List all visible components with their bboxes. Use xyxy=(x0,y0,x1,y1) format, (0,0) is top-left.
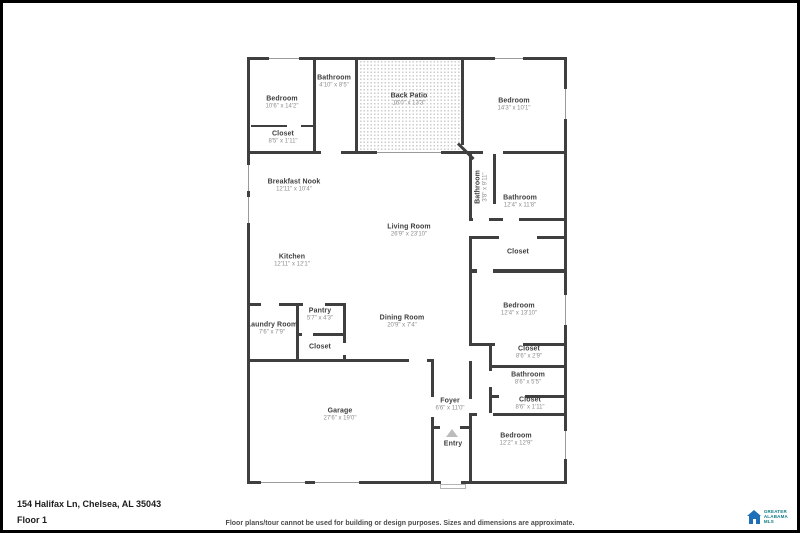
wall-segment xyxy=(299,57,495,60)
address-text: 154 Halifax Ln, Chelsea, AL 35043 xyxy=(17,499,161,509)
room-label-garage: Garage 27'6" x 19'0" xyxy=(324,407,357,424)
wall-segment xyxy=(469,361,472,399)
window-marker xyxy=(495,57,523,60)
wall-segment xyxy=(503,151,564,154)
mls-logo-text: GREATER ALABAMA MLS xyxy=(764,509,788,525)
room-name: Breakfast Nook xyxy=(268,178,321,187)
mls-logo-line: MLS xyxy=(764,519,788,524)
room-name: Living Room xyxy=(387,223,431,232)
room-dims: 6'6" x 11'0" xyxy=(435,406,464,414)
garage-door-marker xyxy=(261,481,305,484)
wall-segment xyxy=(469,154,472,221)
room-name: Back Patio xyxy=(391,92,428,101)
room-label-breakfast-nook: Breakfast Nook 12'11" x 10'4" xyxy=(268,178,321,195)
room-label-bedroom-right: Bedroom 12'4" x 13'10" xyxy=(501,302,537,319)
room-name: Bathroom xyxy=(511,371,545,380)
room-name: Bedroom xyxy=(500,432,533,441)
wall-segment xyxy=(341,151,358,154)
room-name: Foyer xyxy=(435,397,464,406)
window-marker xyxy=(564,431,567,459)
room-label-closet-bottom-1: Closet 8'6" x 2'9" xyxy=(516,345,542,362)
wall-segment xyxy=(247,303,261,306)
wall-segment xyxy=(469,413,477,416)
room-dims: 20'9" x 7'4" xyxy=(380,323,425,331)
room-dims: 7'6" x 7'9" xyxy=(247,330,298,338)
wall-segment xyxy=(247,57,269,60)
room-name: Bathroom xyxy=(474,170,483,204)
wall-segment xyxy=(247,57,250,165)
room-label-closet-top-left: Closet 8'5" x 1'11" xyxy=(268,130,297,147)
room-dims: 12'4" x 11'8" xyxy=(503,203,537,211)
mls-logo: GREATER ALABAMA MLS xyxy=(747,509,788,525)
floor-plan: Bedroom 10'6" x 14'2" Closet 8'5" x 1'11… xyxy=(3,3,797,530)
wall-segment xyxy=(489,395,499,398)
wall-segment xyxy=(460,426,469,429)
room-label-closet-bottom-2: Closet 8'6" x 1'11" xyxy=(515,396,544,413)
room-label-bathroom-small: Bathroom 3'8" x 9'11" xyxy=(474,170,491,204)
room-name: Bedroom xyxy=(501,302,537,311)
wall-segment xyxy=(355,57,358,154)
wall-segment xyxy=(247,359,409,362)
room-dims: 3'8" x 9'11" xyxy=(483,170,491,204)
room-label-bathroom-top: Bathroom 4'10" x 8'5" xyxy=(317,74,351,91)
room-dims: 8'6" x 2'9" xyxy=(516,354,542,362)
wall-segment xyxy=(489,387,492,413)
room-dims: 12'4" x 13'10" xyxy=(501,311,537,319)
wall-segment xyxy=(431,359,434,397)
wall-segment xyxy=(313,57,316,151)
room-label-entry: Entry xyxy=(444,439,462,448)
floor-plan-page: Bedroom 10'6" x 14'2" Closet 8'5" x 1'11… xyxy=(0,0,800,533)
wall-segment xyxy=(464,151,483,154)
room-name: Closet xyxy=(515,396,544,405)
wall-segment xyxy=(441,151,464,154)
wall-segment xyxy=(279,303,303,306)
room-dims: 14'3" x 10'1" xyxy=(498,106,531,114)
room-dims: 10'6" x 14'2" xyxy=(266,104,299,112)
room-label-dining-room: Dining Room 20'9" x 7'4" xyxy=(380,314,425,331)
window-marker xyxy=(269,57,299,60)
wall-segment xyxy=(247,151,321,154)
room-dims: 12'11" x 12'1" xyxy=(274,262,310,270)
room-name: Closet xyxy=(516,345,542,354)
room-name: Bathroom xyxy=(317,74,351,83)
wall-segment xyxy=(469,236,499,239)
room-dims: 5'7" x 4'3" xyxy=(307,316,333,324)
wall-segment xyxy=(493,413,567,416)
room-name: Bathroom xyxy=(503,194,537,203)
room-name: Garage xyxy=(324,407,357,416)
house-door xyxy=(753,519,756,524)
wall-segment xyxy=(301,125,315,127)
wall-segment xyxy=(469,218,473,221)
room-name: Closet xyxy=(507,247,529,256)
disclaimer-text: Floor plans/tour cannot be used for buil… xyxy=(3,520,797,527)
garage-door-marker xyxy=(315,481,359,484)
room-dims: 8'6" x 1'11" xyxy=(515,405,544,413)
house-icon xyxy=(747,509,762,524)
room-label-closet-pantry: Closet xyxy=(309,342,331,351)
wall-segment xyxy=(343,303,346,343)
wall-segment xyxy=(251,125,287,127)
window-marker xyxy=(564,295,567,325)
room-label-bedroom-top-left: Bedroom 10'6" x 14'2" xyxy=(266,95,299,112)
wall-segment xyxy=(489,218,503,221)
wall-segment xyxy=(431,426,440,429)
entry-arrow-icon xyxy=(446,429,458,437)
window-marker xyxy=(247,197,250,223)
room-name: Entry xyxy=(444,439,462,448)
room-name: Dining Room xyxy=(380,314,425,323)
wall-segment xyxy=(313,333,346,336)
window-marker xyxy=(247,165,250,191)
wall-segment xyxy=(537,236,567,239)
wall-segment xyxy=(469,269,477,273)
room-dims: 16'0" x 13'3" xyxy=(391,101,428,109)
room-label-kitchen: Kitchen 12'11" x 12'1" xyxy=(274,253,310,270)
wall-segment xyxy=(461,57,464,145)
window-marker xyxy=(564,89,567,119)
room-name: Pantry xyxy=(307,307,333,316)
room-label-closet-right: Closet xyxy=(507,247,529,256)
wall-segment xyxy=(461,481,567,484)
room-name: Bedroom xyxy=(498,97,531,106)
room-name: Laundry Room xyxy=(247,321,298,330)
wall-segment xyxy=(469,415,472,484)
room-label-laundry-room: Laundry Room 7'6" x 7'9" xyxy=(247,321,298,338)
room-label-bedroom-bottom-right: Bedroom 12'2" x 12'9" xyxy=(500,432,533,449)
room-dims: 8'6" x 5'5" xyxy=(511,380,545,388)
room-name: Closet xyxy=(309,342,331,351)
room-label-living-room: Living Room 26'9" x 23'10" xyxy=(387,223,431,240)
wall-segment xyxy=(492,365,567,368)
room-dims: 12'11" x 10'4" xyxy=(268,187,321,195)
wall-segment xyxy=(493,154,496,204)
wall-segment xyxy=(523,57,567,60)
room-name: Bedroom xyxy=(266,95,299,104)
room-label-bathroom-right: Bathroom 12'4" x 11'8" xyxy=(503,194,537,211)
wall-segment xyxy=(247,481,261,484)
entry-step xyxy=(440,484,466,489)
wall-segment xyxy=(305,481,315,484)
room-label-pantry: Pantry 5'7" x 4'3" xyxy=(307,307,333,324)
sliding-door-marker xyxy=(377,151,441,154)
room-name: Closet xyxy=(268,130,297,139)
wall-segment xyxy=(519,218,567,221)
room-dims: 8'5" x 1'11" xyxy=(268,139,297,147)
room-label-bedroom-top-right: Bedroom 14'3" x 10'1" xyxy=(498,97,531,114)
room-label-foyer: Foyer 6'6" x 11'0" xyxy=(435,397,464,414)
room-dims: 26'9" x 23'10" xyxy=(387,232,431,240)
room-name: Kitchen xyxy=(274,253,310,262)
wall-segment xyxy=(469,236,472,346)
room-dims: 4'10" x 8'5" xyxy=(317,83,351,91)
room-dims: 27'6" x 19'0" xyxy=(324,416,357,424)
room-label-back-patio: Back Patio 16'0" x 13'3" xyxy=(391,92,428,109)
wall-segment xyxy=(358,151,377,154)
wall-segment xyxy=(564,459,567,484)
wall-segment xyxy=(493,269,567,273)
wall-segment xyxy=(564,57,567,89)
wall-segment xyxy=(359,481,441,484)
room-label-bathroom-bottom: Bathroom 8'6" x 5'5" xyxy=(511,371,545,388)
wall-segment xyxy=(247,223,250,484)
room-dims: 12'2" x 12'9" xyxy=(500,441,533,449)
